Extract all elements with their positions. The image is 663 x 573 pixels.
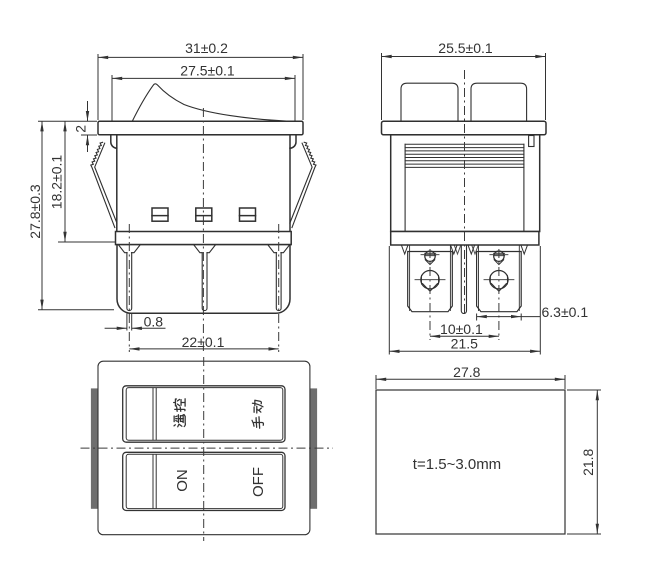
svg-text:27.5±0.1: 27.5±0.1: [180, 63, 235, 79]
svg-text:2: 2: [72, 125, 88, 133]
svg-text:OFF: OFF: [250, 467, 267, 497]
svg-text:27.8: 27.8: [453, 364, 480, 380]
svg-text:22±0.1: 22±0.1: [182, 334, 225, 350]
svg-text:18.2±0.1: 18.2±0.1: [49, 155, 65, 210]
svg-text:25.5±0.1: 25.5±0.1: [438, 40, 493, 56]
svg-text:0.8: 0.8: [144, 313, 164, 329]
svg-text:21.5: 21.5: [451, 336, 478, 352]
svg-text:21.8: 21.8: [580, 448, 596, 475]
svg-text:ON: ON: [174, 469, 191, 492]
svg-text:27.8±0.3: 27.8±0.3: [27, 184, 43, 239]
svg-text:6.3±0.1: 6.3±0.1: [542, 304, 589, 320]
svg-text:31±0.2: 31±0.2: [185, 40, 228, 56]
svg-text:t=1.5~3.0mm: t=1.5~3.0mm: [413, 456, 501, 473]
